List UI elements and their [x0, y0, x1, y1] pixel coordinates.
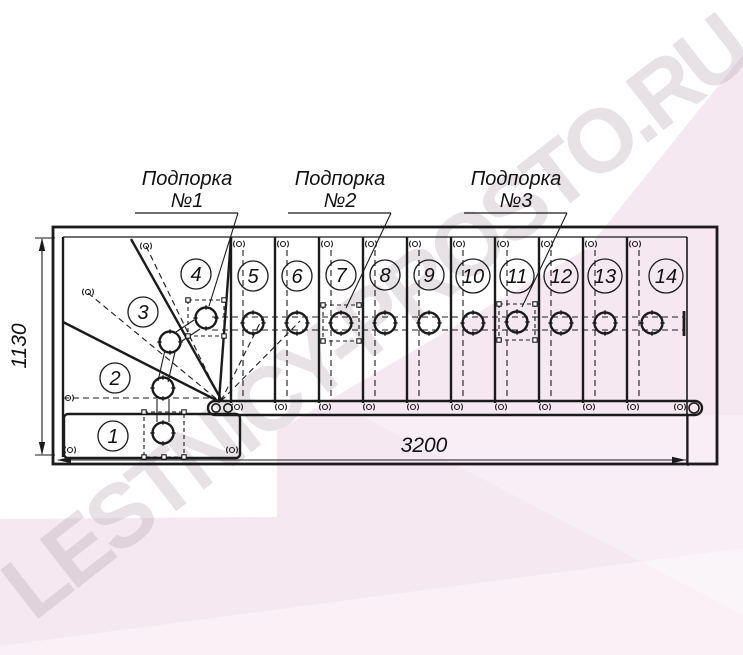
screw-fitting-icon — [364, 404, 375, 411]
rail-post — [416, 310, 441, 335]
stringer-end-fitting — [689, 403, 699, 413]
box-tick — [497, 338, 501, 342]
arrowhead-down — [39, 442, 45, 455]
rail-post-support-3 — [504, 309, 529, 334]
rail-post — [592, 310, 617, 335]
screw-fitting-icon — [83, 289, 94, 296]
screw-fitting-icon — [232, 404, 243, 411]
step-number-label: 11 — [507, 266, 528, 288]
screw-fitting-icon — [322, 241, 333, 248]
support-box-1 — [186, 298, 226, 338]
support-label-line2: №3 — [500, 190, 533, 212]
box-tick — [357, 303, 361, 307]
screw-fitting-icon — [410, 241, 421, 248]
rail-post-support-2 — [328, 310, 353, 335]
support-box-2 — [321, 303, 361, 343]
rail-post — [157, 329, 182, 354]
step-number-label: 4 — [190, 264, 201, 286]
screw-fitting-icon — [278, 241, 289, 248]
newel-post-box — [142, 410, 186, 459]
step-number-3: 3 — [128, 297, 158, 327]
rail-post — [460, 310, 485, 335]
box-tick — [321, 303, 325, 307]
rail-post — [150, 375, 175, 400]
newel-box-dashed — [144, 412, 184, 457]
screw-fitting-icon — [498, 241, 509, 248]
step-number-label: 3 — [137, 302, 148, 324]
dimension-width-value: 3200 — [401, 434, 448, 457]
screw-fitting-icon — [276, 404, 287, 411]
rail-post — [240, 310, 265, 335]
arrowhead-left — [57, 457, 71, 463]
step-number-label: 5 — [247, 266, 259, 288]
dimension-height-value: 1130 — [8, 323, 31, 368]
box-tick — [186, 298, 190, 302]
support-label-line2: №2 — [324, 190, 357, 212]
winder-edge-4-5 — [219, 238, 231, 401]
screw-fitting-icon — [320, 404, 331, 411]
screw-fitting-icon — [65, 447, 76, 454]
step-number-label: 14 — [655, 266, 677, 288]
rail-post — [284, 310, 309, 335]
screw-fitting-icon — [496, 404, 507, 411]
box-tick — [222, 334, 226, 338]
box-tick — [182, 410, 186, 414]
box-tick — [497, 302, 501, 306]
screw-fitting-icon — [452, 404, 463, 411]
screw-fitting-icon — [227, 447, 238, 454]
rail-post — [639, 310, 664, 335]
step-number-label: 1 — [107, 426, 118, 448]
step-number-label: 12 — [550, 266, 572, 288]
support-box-dashed — [323, 305, 359, 341]
support-label-line1: Подпорка — [142, 168, 233, 190]
box-tick — [533, 338, 537, 342]
screw-fitting-icon — [675, 404, 686, 411]
screw-fitting-icon — [584, 404, 595, 411]
step-number-label: 7 — [335, 265, 347, 287]
screw-fitting-icon — [234, 241, 245, 248]
step-number-label: 2 — [108, 368, 120, 390]
step-number-2: 2 — [100, 363, 130, 393]
arrowhead-right — [672, 457, 686, 463]
box-tick — [222, 298, 226, 302]
screw-fitting-icon — [454, 241, 465, 248]
rail-post — [548, 310, 573, 335]
dimension-height: 1130 — [8, 238, 55, 455]
winder-edge-2-3 — [63, 322, 220, 402]
screw-fitting-icon — [408, 404, 419, 411]
screw-fitting-icon — [630, 241, 641, 248]
box-tick — [182, 455, 186, 459]
box-tick — [321, 339, 325, 343]
step-number-label: 13 — [594, 266, 616, 288]
support-label-line1: Подпорка — [295, 168, 386, 190]
rail-post — [372, 310, 397, 335]
step-number-12: 12 — [544, 259, 578, 293]
winder-edges — [63, 238, 300, 402]
step-number-10: 10 — [456, 259, 490, 293]
box-tick — [162, 455, 166, 459]
box-tick — [142, 455, 146, 459]
step-number-label: 6 — [291, 266, 303, 288]
step-number-4: 4 — [181, 259, 211, 289]
screw-fitting-icon — [628, 404, 639, 411]
box-tick — [186, 334, 190, 338]
arrowhead-up — [39, 238, 45, 251]
step-number-label: 9 — [423, 265, 434, 287]
screw-fitting-icon — [586, 241, 597, 248]
box-tick — [357, 339, 361, 343]
support-label-line1: Подпорка — [471, 168, 562, 190]
support-box-3 — [497, 302, 537, 342]
winder-construction-dashed — [221, 321, 300, 401]
screw-fitting-icon — [540, 404, 551, 411]
stair-plan-page: LESTNICY-PROSTO.RU — [0, 0, 743, 655]
rail-post-support-1 — [193, 305, 218, 330]
step-number-11: 11 — [500, 259, 534, 293]
box-tick — [533, 302, 537, 306]
winder-construction-dashed — [221, 319, 262, 401]
step-number-14: 14 — [649, 259, 683, 293]
step-number-label: 10 — [462, 266, 484, 288]
support-box-dashed — [188, 300, 224, 336]
stringer-end-fitting — [212, 404, 220, 412]
box-tick — [142, 410, 146, 414]
step-number-13: 13 — [588, 259, 622, 293]
step-number-1: 1 — [98, 421, 128, 451]
staircase-plan-drawing: 1 2 3 4 5 6 7 8 9 10 11 12 13 14 Подпорк… — [0, 0, 743, 655]
support-label-line2: №1 — [171, 190, 204, 212]
step-number-label: 8 — [379, 265, 390, 287]
rail-post — [150, 420, 175, 445]
